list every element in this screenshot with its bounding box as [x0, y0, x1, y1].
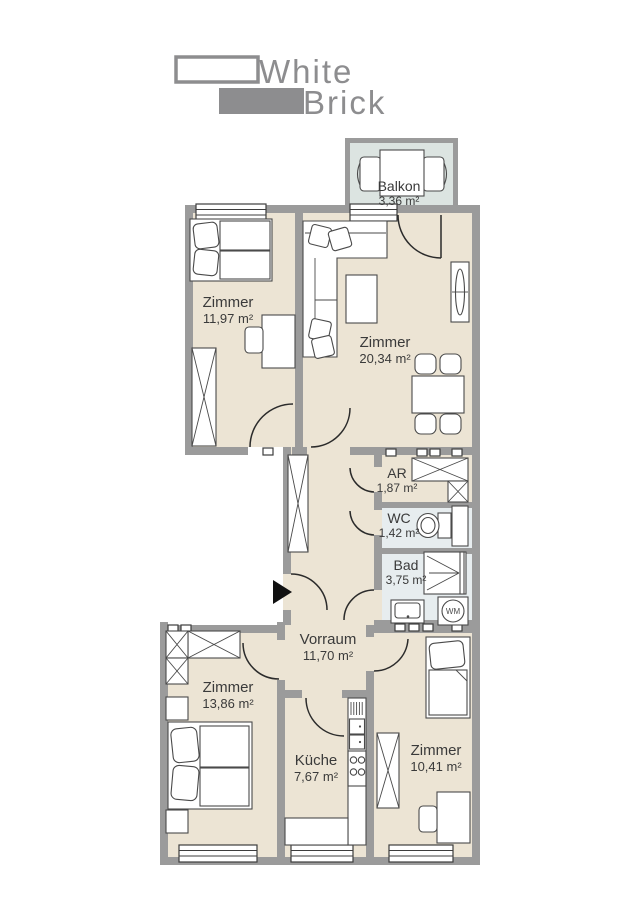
- window-zimmer-se: [389, 845, 453, 862]
- window-kueche: [291, 845, 353, 862]
- desk-nw: [262, 315, 295, 368]
- desk-se: [437, 792, 470, 843]
- label-zimmer-sw: Zimmer 13,86 m²: [202, 679, 254, 711]
- window-zimmer-nw: [196, 204, 266, 221]
- svg-text:Küche: Küche: [295, 752, 338, 769]
- bed-double-sw: [168, 722, 252, 809]
- floorplan-page: White Brick: [0, 0, 637, 900]
- svg-text:Vorraum: Vorraum: [300, 631, 357, 648]
- svg-text:Zimmer: Zimmer: [411, 742, 462, 759]
- svg-text:3,36 m²: 3,36 m²: [379, 194, 420, 208]
- logo-word-brick: Brick: [303, 84, 386, 121]
- dining-chair: [415, 414, 436, 434]
- label-balkon: Balkon 3,36 m²: [378, 178, 421, 208]
- svg-text:10,41 m²: 10,41 m²: [410, 759, 462, 774]
- label-zimmer-nw: Zimmer 11,97 m²: [203, 294, 254, 326]
- svg-text:Bad: Bad: [394, 557, 419, 573]
- svg-text:Zimmer: Zimmer: [203, 294, 254, 311]
- bed-single-se: [426, 637, 470, 718]
- shower: [424, 552, 466, 594]
- desk-chair-nw: [245, 327, 263, 353]
- bed-double-nw: [190, 219, 272, 281]
- logo-gray-brick-shape: [219, 88, 304, 114]
- hall-wardrobe: [288, 455, 308, 552]
- desk-chair-se: [419, 806, 437, 832]
- svg-text:Balkon: Balkon: [378, 178, 421, 194]
- svg-text:3,75 m²: 3,75 m²: [386, 573, 427, 587]
- svg-text:7,67 m²: 7,67 m²: [294, 769, 339, 784]
- washing-machine-label: WM: [446, 607, 461, 616]
- label-vorraum: Vorraum 11,70 m²: [300, 631, 357, 663]
- svg-text:13,86 m²: 13,86 m²: [202, 696, 254, 711]
- wc-shaft: [452, 506, 468, 546]
- svg-text:Zimmer: Zimmer: [360, 334, 411, 351]
- window-zimmer-sw: [179, 845, 257, 862]
- dining-table: [412, 376, 464, 413]
- nightstand-top: [166, 697, 188, 720]
- washing-machine: WM: [438, 597, 468, 625]
- svg-text:11,70 m²: 11,70 m²: [303, 648, 354, 663]
- balcony-chair-right: [423, 157, 444, 191]
- svg-text:11,97 m²: 11,97 m²: [203, 311, 254, 326]
- wardrobe-nw: [192, 348, 216, 446]
- toilet: [417, 513, 451, 538]
- label-zimmer-se: Zimmer 10,41 m²: [410, 742, 462, 774]
- whitebrick-logo: White Brick: [176, 53, 386, 121]
- svg-text:WC: WC: [387, 510, 410, 526]
- label-zimmer-ne: Zimmer 20,34 m²: [359, 334, 411, 366]
- dining-chair: [440, 414, 461, 434]
- svg-text:20,34 m²: 20,34 m²: [359, 351, 411, 366]
- logo-white-brick-shape: [176, 57, 258, 82]
- wall-mirror-unit: [451, 262, 469, 322]
- bathroom-sink: [391, 600, 424, 623]
- nightstand-bottom: [166, 810, 188, 833]
- svg-text:1,42 m²: 1,42 m²: [379, 526, 420, 540]
- wardrobe-se: [377, 733, 399, 808]
- coffee-table: [346, 275, 377, 323]
- dining-chair: [415, 354, 436, 374]
- dining-chair: [440, 354, 461, 374]
- svg-text:1,87 m²: 1,87 m²: [377, 481, 418, 495]
- label-kueche: Küche 7,67 m²: [294, 752, 339, 784]
- floorplan-drawing: White Brick: [0, 0, 637, 900]
- svg-text:Zimmer: Zimmer: [203, 679, 254, 696]
- kitchen-counter-bottom: [285, 818, 348, 845]
- svg-text:AR: AR: [387, 465, 406, 481]
